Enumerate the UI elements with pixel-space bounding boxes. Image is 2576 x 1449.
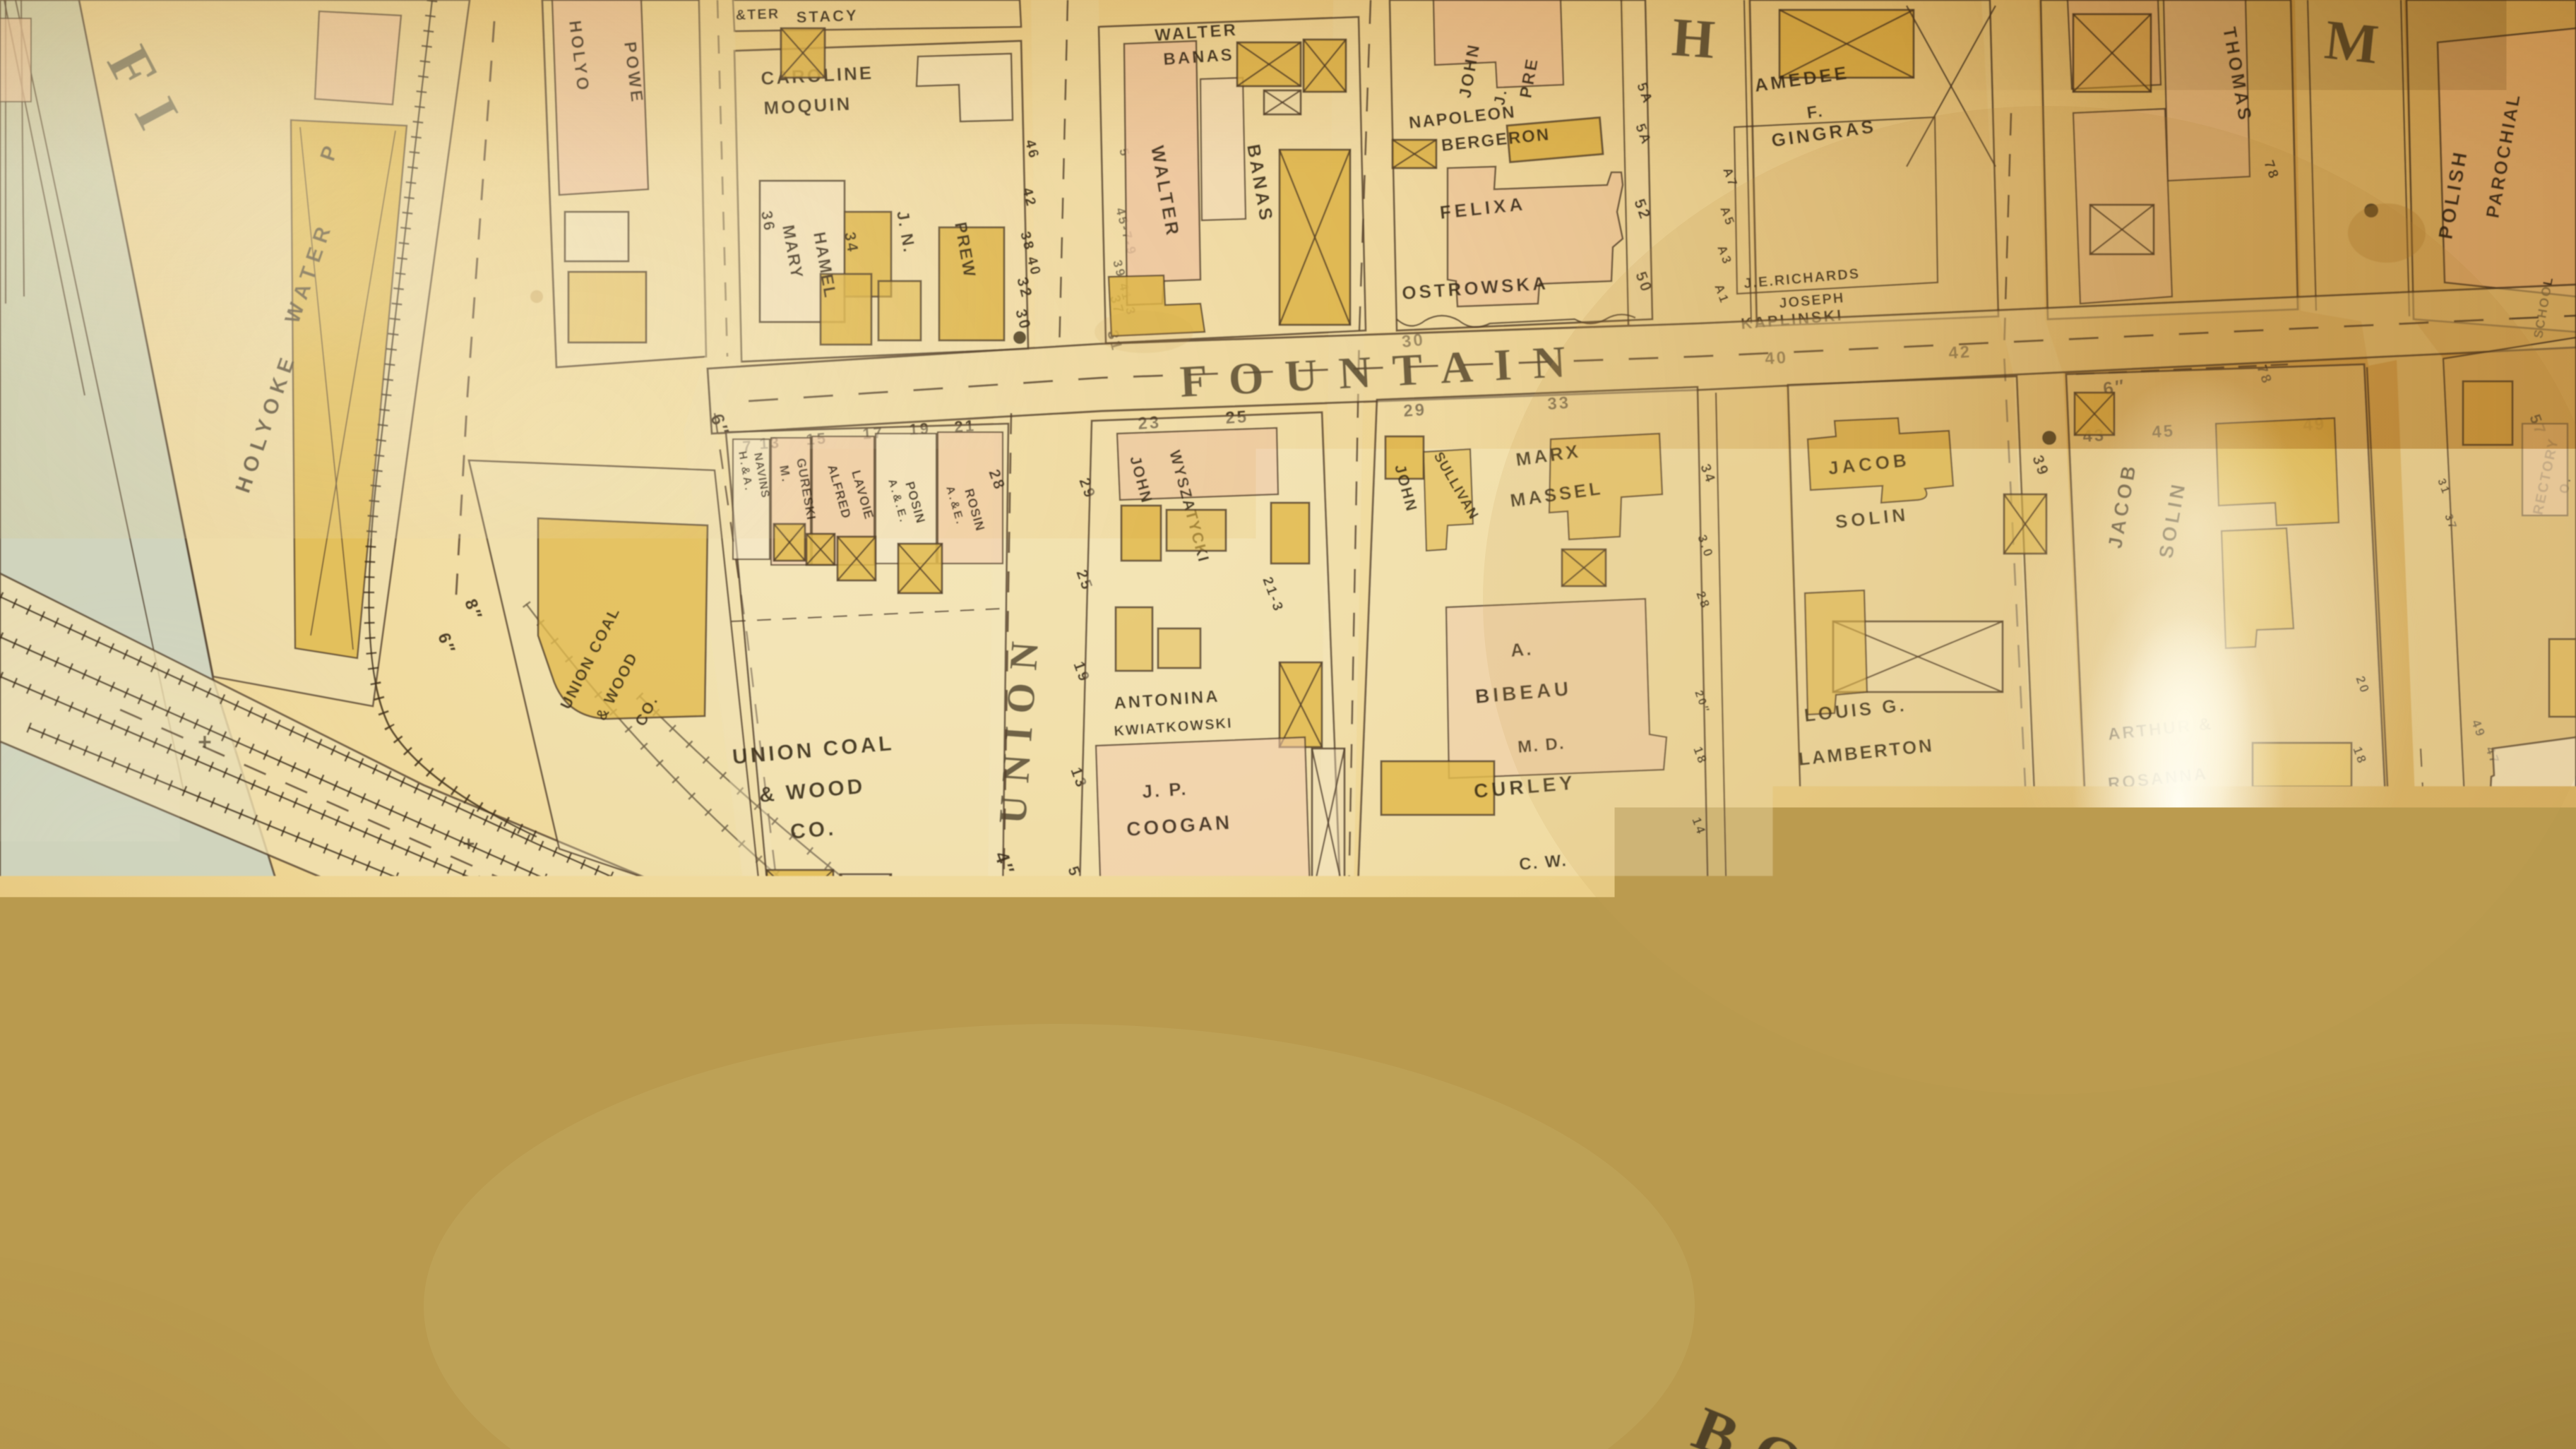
svg-text:J.: J. xyxy=(1514,975,1534,996)
svg-text:J. P.: J. P. xyxy=(1141,778,1188,802)
svg-text:CO.: CO. xyxy=(789,816,837,844)
svg-text:H: H xyxy=(1670,6,1717,70)
svg-text:6″: 6″ xyxy=(1148,917,1177,944)
svg-text:DU: DU xyxy=(2514,900,2546,922)
svg-text:23: 23 xyxy=(2296,1047,2320,1068)
svg-text:F.: F. xyxy=(1806,102,1825,123)
svg-text:N.: N. xyxy=(1559,970,1582,991)
svg-text:+: + xyxy=(463,833,477,856)
svg-text:6″: 6″ xyxy=(1629,989,1657,1014)
svg-text:20: 20 xyxy=(1526,1085,1551,1106)
